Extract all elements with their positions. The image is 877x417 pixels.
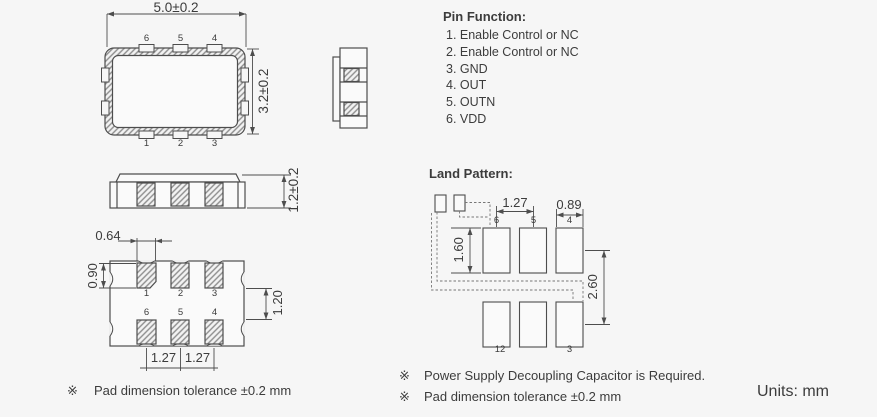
right-note-2-marker: ※ xyxy=(399,390,410,404)
land-pad-height-dim: 1.60 xyxy=(452,234,466,266)
land-pad-label-6: 6 xyxy=(490,216,504,226)
land-pad-label-12: 12 xyxy=(490,345,510,355)
land-pattern-drawing xyxy=(432,195,584,347)
side-view-drawing xyxy=(110,174,245,208)
bottom-view-pin-2: 2 xyxy=(174,289,188,299)
package-inner-body xyxy=(113,56,238,128)
bottom-row-gap-dim: 1.20 xyxy=(271,287,285,319)
end-view-drawing xyxy=(333,48,367,128)
pin-function-item-1: 1. Enable Control or NC xyxy=(446,27,579,44)
land-pattern-pads xyxy=(483,228,583,347)
package-lid xyxy=(116,174,240,182)
pin-function-item-3: 3. GND xyxy=(446,61,579,78)
top-view-height-dim: 3.2±0.2 xyxy=(257,61,271,121)
bottom-pad-width-dim: 0.64 xyxy=(88,229,128,243)
land-pad-label-3: 3 xyxy=(563,345,577,355)
top-view-width-dim: 5.0±0.2 xyxy=(151,1,201,15)
bottom-pitch-left-dim: 1.27 xyxy=(147,351,180,365)
right-note-1-marker: ※ xyxy=(399,369,410,383)
top-view-pin-5: 5 xyxy=(174,34,188,44)
side-view-height-dim: 1.2±0.2 xyxy=(287,160,301,220)
side-view-pads xyxy=(137,183,223,206)
datasheet-drawing-page: 5.0±0.2 3.2±0.2 6 5 4 1 2 3 1.2±0.2 0.64… xyxy=(0,0,877,417)
bottom-view-pin-6: 6 xyxy=(140,308,154,318)
top-view-drawing xyxy=(102,45,249,139)
pin-function-item-2: 2. Enable Control or NC xyxy=(446,44,579,61)
pin-function-item-6: 6. VDD xyxy=(446,111,579,128)
land-pitch-dim: 1.27 xyxy=(495,196,535,210)
pin-function-item-5: 5. OUTN xyxy=(446,94,579,111)
bottom-view-pin-3: 3 xyxy=(208,289,222,299)
bottom-pitch-right-dim: 1.27 xyxy=(181,351,214,365)
land-pad-label-4: 4 xyxy=(563,216,577,226)
top-view-pin-4: 4 xyxy=(208,34,222,44)
bottom-pad-height-dim: 0.90 xyxy=(86,260,100,292)
decoupling-cap-pad-right xyxy=(454,195,465,211)
land-pad-width-dim: 0.89 xyxy=(549,198,589,212)
right-note-1-text: Power Supply Decoupling Capacitor is Req… xyxy=(424,369,705,383)
top-view-pin-1: 1 xyxy=(140,139,154,149)
land-pattern-title: Land Pattern: xyxy=(429,167,513,181)
drawing-linework xyxy=(0,0,877,417)
pad-1-chamfered xyxy=(137,263,156,288)
bottom-view-pin-1: 1 xyxy=(140,289,154,299)
pin-function-item-4: 4. OUT xyxy=(446,77,579,94)
left-note-text: Pad dimension tolerance ±0.2 mm xyxy=(94,384,291,398)
decoupling-cap-pad-left xyxy=(435,195,446,212)
right-note-2-text: Pad dimension tolerance ±0.2 mm xyxy=(424,390,621,404)
units-label: Units: mm xyxy=(757,384,829,401)
pin-function-title: Pin Function: xyxy=(443,10,526,24)
pin-function-list: 1. Enable Control or NC 2. Enable Contro… xyxy=(446,27,579,128)
bottom-view-pin-4: 4 xyxy=(208,308,222,318)
top-view-pin-2: 2 xyxy=(174,139,188,149)
land-row-spacing-dim: 2.60 xyxy=(586,271,600,303)
land-pad-label-5: 5 xyxy=(527,216,541,226)
bottom-view-drawing xyxy=(109,260,245,346)
end-lid xyxy=(333,57,340,121)
top-view-pin-3: 3 xyxy=(208,139,222,149)
left-note-marker: ※ xyxy=(67,384,78,398)
bottom-view-pin-5: 5 xyxy=(174,308,188,318)
top-view-pin-6: 6 xyxy=(140,34,154,44)
